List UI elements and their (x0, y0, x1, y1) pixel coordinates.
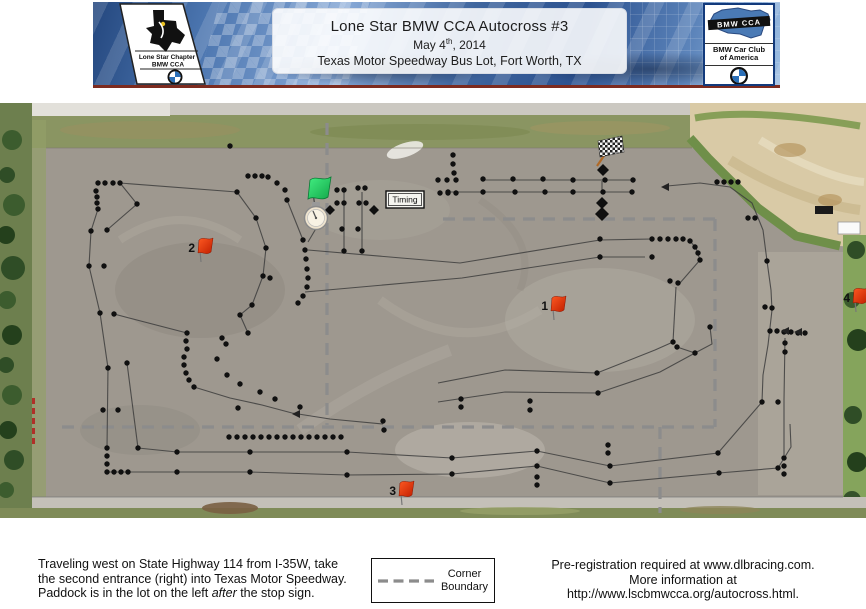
cone (458, 396, 463, 401)
cone (527, 398, 532, 403)
cone (649, 236, 654, 241)
cone (355, 226, 360, 231)
cone (102, 180, 107, 185)
cone (111, 311, 116, 316)
cone (101, 263, 106, 268)
cone (450, 161, 455, 166)
cone (266, 434, 271, 439)
cone (667, 278, 672, 283)
cone (597, 254, 602, 259)
cone (267, 275, 272, 280)
cone (105, 365, 110, 370)
cone (234, 434, 239, 439)
cone (245, 173, 250, 178)
corner-flag-number: 2 (188, 241, 195, 255)
cone (183, 338, 188, 343)
cone (282, 434, 287, 439)
cone (788, 329, 793, 334)
cone (762, 304, 767, 309)
cone (707, 324, 712, 329)
cone (104, 227, 109, 232)
cone (570, 189, 575, 194)
cone (540, 176, 545, 181)
cone (673, 236, 678, 241)
course-map-svg: 1234 Timing (0, 103, 866, 518)
cone (125, 469, 130, 474)
cone (597, 236, 602, 241)
usa-map-icon: BMW CCA (706, 5, 772, 43)
cone (445, 190, 450, 195)
cone (775, 399, 780, 404)
cone (227, 143, 232, 148)
cone (453, 190, 458, 195)
cone (510, 176, 515, 181)
cone (334, 187, 339, 192)
cone (274, 180, 279, 185)
cone (306, 434, 311, 439)
cone (362, 185, 367, 190)
cone (381, 427, 386, 432)
cone (355, 185, 360, 190)
cone (692, 244, 697, 249)
cone (764, 258, 769, 263)
cone (314, 434, 319, 439)
registration-text: Pre-registration required at www.dlbraci… (505, 558, 861, 602)
cone (272, 396, 277, 401)
cone (94, 194, 99, 199)
cone (304, 284, 309, 289)
cone (781, 471, 786, 476)
cone (330, 434, 335, 439)
cone (86, 263, 91, 268)
cone (435, 177, 440, 182)
cone (134, 201, 139, 206)
legend-label: Corner Boundary (435, 568, 494, 594)
event-banner: Lone Star Chapter BMW CCA Lone Star BMW … (93, 2, 780, 88)
cone (234, 189, 239, 194)
cone (602, 177, 607, 182)
cone (174, 469, 179, 474)
cone (600, 189, 605, 194)
cone (104, 461, 109, 466)
cone (282, 187, 287, 192)
cone (774, 328, 779, 333)
cone (649, 254, 654, 259)
cone (781, 463, 786, 468)
cone (781, 455, 786, 460)
bmw-roundel-icon (728, 66, 750, 84)
cone (512, 189, 517, 194)
cone (117, 180, 122, 185)
cone (670, 339, 675, 344)
cone (534, 463, 539, 468)
cone (480, 176, 485, 181)
cone (304, 266, 309, 271)
cone (594, 370, 599, 375)
cone (769, 305, 774, 310)
cone (534, 474, 539, 479)
chapter-name-line1: Lone Star Chapter (139, 54, 196, 61)
cone (775, 465, 780, 470)
cone (695, 250, 700, 255)
cone (629, 189, 634, 194)
cone (570, 177, 575, 182)
cone (118, 469, 123, 474)
cone (184, 330, 189, 335)
cone (191, 384, 196, 389)
cone (675, 280, 680, 285)
cone (249, 302, 254, 307)
cone (97, 310, 102, 315)
cone (344, 472, 349, 477)
cone (284, 197, 289, 202)
cone (444, 177, 449, 182)
cone (451, 170, 456, 175)
event-location: Texas Motor Speedway Bus Lot, Fort Worth… (273, 54, 626, 68)
cone (341, 187, 346, 192)
cone (715, 450, 720, 455)
cone (665, 236, 670, 241)
cone (100, 407, 105, 412)
cone (344, 449, 349, 454)
cone (110, 180, 115, 185)
cone (534, 448, 539, 453)
cone (692, 350, 697, 355)
cone (782, 340, 787, 345)
cone (449, 471, 454, 476)
event-title: Lone Star BMW CCA Autocross #3 (273, 18, 626, 35)
cone (322, 434, 327, 439)
cone (534, 482, 539, 487)
cone (94, 200, 99, 205)
directions-text: Traveling west on State Highway 114 from… (38, 557, 374, 601)
cone (759, 399, 764, 404)
cone (745, 215, 750, 220)
cone (595, 390, 600, 395)
cone (338, 434, 343, 439)
cone (735, 179, 740, 184)
cone (630, 177, 635, 182)
cone (721, 179, 726, 184)
cone (752, 215, 757, 220)
timing-box: Timing (386, 191, 424, 208)
cone (302, 247, 307, 252)
cone (380, 418, 385, 423)
cone (181, 354, 186, 359)
cone (458, 404, 463, 409)
lone-star-chapter-logo: Lone Star Chapter BMW CCA (101, 2, 211, 86)
cone (245, 330, 250, 335)
cone (300, 293, 305, 298)
cone (223, 341, 228, 346)
cone (716, 470, 721, 475)
cone (226, 434, 231, 439)
cone (242, 434, 247, 439)
cone (298, 434, 303, 439)
cone (93, 188, 98, 193)
bmw-roundel-icon (168, 70, 183, 85)
cone (247, 469, 252, 474)
cone (674, 344, 679, 349)
cone (181, 362, 186, 367)
cone (657, 236, 662, 241)
cone (697, 257, 702, 262)
cone (259, 173, 264, 178)
cone (258, 434, 263, 439)
cone (303, 256, 308, 261)
cone (782, 349, 787, 354)
cone (214, 356, 219, 361)
timing-label: Timing (392, 195, 417, 205)
cone (300, 237, 305, 242)
cone (305, 275, 310, 280)
cone (363, 200, 368, 205)
cone (341, 248, 346, 253)
cone (95, 206, 100, 211)
cone (186, 377, 191, 382)
cone (237, 381, 242, 386)
bmw-cca-logo: BMW CCA BMW Car Club of America (703, 3, 775, 86)
cone (290, 434, 295, 439)
event-title-box: Lone Star BMW CCA Autocross #3 May 4th, … (272, 8, 627, 74)
club-name: BMW Car Club of America (713, 44, 765, 65)
cone (250, 434, 255, 439)
cone (450, 152, 455, 157)
cone (334, 200, 339, 205)
cone (605, 442, 610, 447)
cone (359, 248, 364, 253)
terrain (0, 103, 866, 518)
cone (124, 360, 129, 365)
legend-box: Corner Boundary (371, 558, 495, 603)
cone (714, 179, 719, 184)
cone (297, 404, 302, 409)
cone (274, 434, 279, 439)
cone (104, 469, 109, 474)
event-date: May 4th, 2014 (273, 37, 626, 52)
chapter-name-line2: BMW CCA (152, 62, 184, 69)
course-map: 1234 Timing (0, 103, 866, 518)
cone (527, 407, 532, 412)
cone (183, 370, 188, 375)
cone (687, 238, 692, 243)
cone (237, 312, 242, 317)
corner-flag-number: 1 (541, 299, 548, 313)
cone (605, 450, 610, 455)
cone (247, 449, 252, 454)
cone (542, 189, 547, 194)
cone (104, 453, 109, 458)
cone (453, 177, 458, 182)
corner-flag-number: 3 (389, 484, 396, 498)
green-start-flag-icon (308, 177, 331, 199)
cone (252, 173, 257, 178)
cone (263, 245, 268, 250)
cone (235, 405, 240, 410)
cone (802, 330, 807, 335)
cone (728, 179, 733, 184)
cone (115, 407, 120, 412)
cone (253, 215, 258, 220)
cone (135, 445, 140, 450)
cone (449, 455, 454, 460)
dashed-line-sample (377, 577, 435, 585)
cone (260, 273, 265, 278)
cone (295, 300, 300, 305)
cone (95, 180, 100, 185)
cone (224, 372, 229, 377)
cone (341, 200, 346, 205)
cone (184, 346, 189, 351)
cone (680, 236, 685, 241)
cone (480, 189, 485, 194)
cone (437, 190, 442, 195)
flyer-page: Lone Star Chapter BMW CCA Lone Star BMW … (0, 0, 866, 609)
cone (174, 449, 179, 454)
cone (356, 200, 361, 205)
cone (88, 228, 93, 233)
cone (767, 328, 772, 333)
cone (104, 445, 109, 450)
corner-flag-number: 4 (843, 291, 850, 305)
cone (607, 463, 612, 468)
cone (257, 389, 262, 394)
cone (607, 480, 612, 485)
cone (219, 335, 224, 340)
cone (111, 469, 116, 474)
cone (339, 226, 344, 231)
cone (265, 174, 270, 179)
